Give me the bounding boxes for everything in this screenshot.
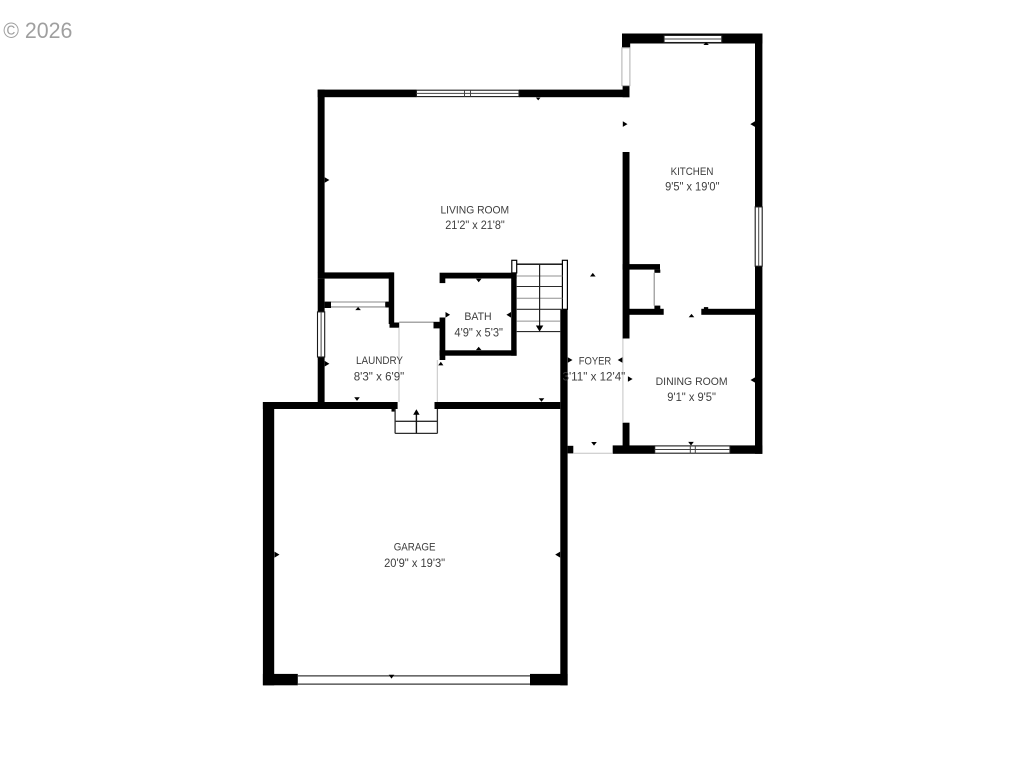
svg-text:20'9" x 19'3": 20'9" x 19'3" — [384, 556, 445, 570]
svg-text:LAUNDRY: LAUNDRY — [356, 355, 403, 367]
svg-text:8'3" x 6'9": 8'3" x 6'9" — [354, 369, 405, 383]
svg-text:9'5" x 19'0": 9'5" x 19'0" — [665, 180, 719, 194]
svg-text:© 2026: © 2026 — [3, 18, 72, 43]
svg-text:FOYER: FOYER — [579, 356, 612, 368]
svg-text:3'11" x 12'4": 3'11" x 12'4" — [563, 370, 626, 384]
svg-text:21'2" x 21'8": 21'2" x 21'8" — [445, 218, 505, 232]
svg-text:4'9" x 5'3": 4'9" x 5'3" — [454, 325, 503, 339]
svg-text:DINING ROOM: DINING ROOM — [656, 376, 728, 388]
svg-text:KITCHEN: KITCHEN — [671, 166, 714, 178]
svg-text:BATH: BATH — [464, 311, 491, 323]
svg-text:9'1" x 9'5": 9'1" x 9'5" — [667, 390, 716, 404]
svg-text:GARAGE: GARAGE — [394, 542, 436, 554]
svg-text:LIVING ROOM: LIVING ROOM — [440, 204, 509, 216]
